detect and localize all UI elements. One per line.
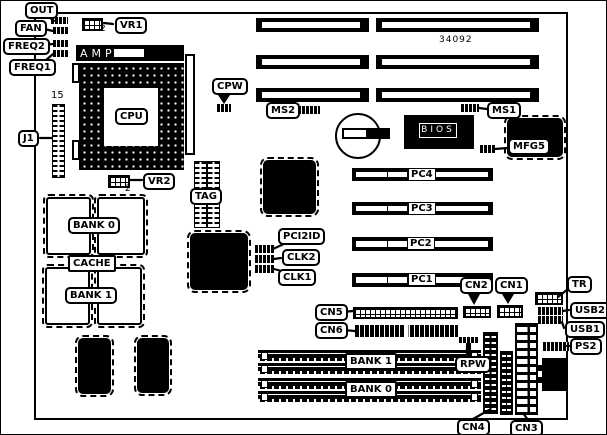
label-clk2: CLK2 (282, 249, 320, 266)
label-clk1: CLK1 (278, 269, 316, 286)
label-out: OUT (25, 2, 58, 19)
motherboard-diagram: 34092 OUT FAN FREQ2 FREQ1 2 VR1 AMP CPU … (0, 0, 607, 435)
label-cache-bank0: BANK 0 (68, 217, 120, 234)
label-cpu: CPU (115, 108, 148, 125)
label-pc4: PC4 (408, 168, 436, 181)
label-freq2: FREQ2 (3, 38, 50, 55)
label-cn5: CN5 (315, 304, 348, 321)
label-j1: J1 (18, 130, 39, 147)
vr1-pin-number: 2 (100, 24, 106, 34)
label-pci2id: PCI2ID (278, 228, 325, 245)
j1-pin-count: 15 (51, 90, 64, 101)
label-fan: FAN (15, 20, 47, 37)
label-mfg5: MFG5 (508, 138, 550, 155)
label-vr1: VR1 (115, 17, 147, 34)
label-ms1: MS1 (487, 102, 521, 119)
label-cn4: CN4 (457, 419, 490, 435)
label-cn1: CN1 (495, 277, 528, 294)
label-simm-bank1: BANK 1 (345, 353, 397, 370)
vr2-pin-number: 2 (125, 184, 131, 194)
label-pc3: PC3 (408, 202, 436, 215)
board-part-number: 34092 (439, 35, 473, 45)
label-vr2: VR2 (143, 173, 175, 190)
label-pc2: PC2 (407, 237, 435, 250)
label-ms2: MS2 (266, 102, 300, 119)
label-rpw: RPW (455, 356, 491, 373)
label-simm-bank0: BANK 0 (345, 381, 397, 398)
label-usb1: USB1 (565, 321, 605, 338)
label-freq1: FREQ1 (9, 59, 56, 76)
cn1-arrow (502, 294, 514, 304)
label-tag: TAG (190, 188, 222, 205)
label-cache-bank1: BANK 1 (65, 287, 117, 304)
label-cn3: CN3 (510, 420, 543, 435)
label-ps2: PS2 (570, 338, 602, 355)
label-pc1: PC1 (408, 273, 436, 286)
label-tr: TR (567, 276, 592, 293)
label-cn6: CN6 (315, 322, 348, 339)
label-cache: CACHE (68, 255, 116, 272)
cn2-arrow (468, 294, 480, 305)
label-cpw: CPW (212, 78, 248, 95)
cpw-arrow (218, 95, 230, 104)
label-usb2: USB2 (570, 302, 607, 319)
label-cn2: CN2 (460, 277, 493, 294)
